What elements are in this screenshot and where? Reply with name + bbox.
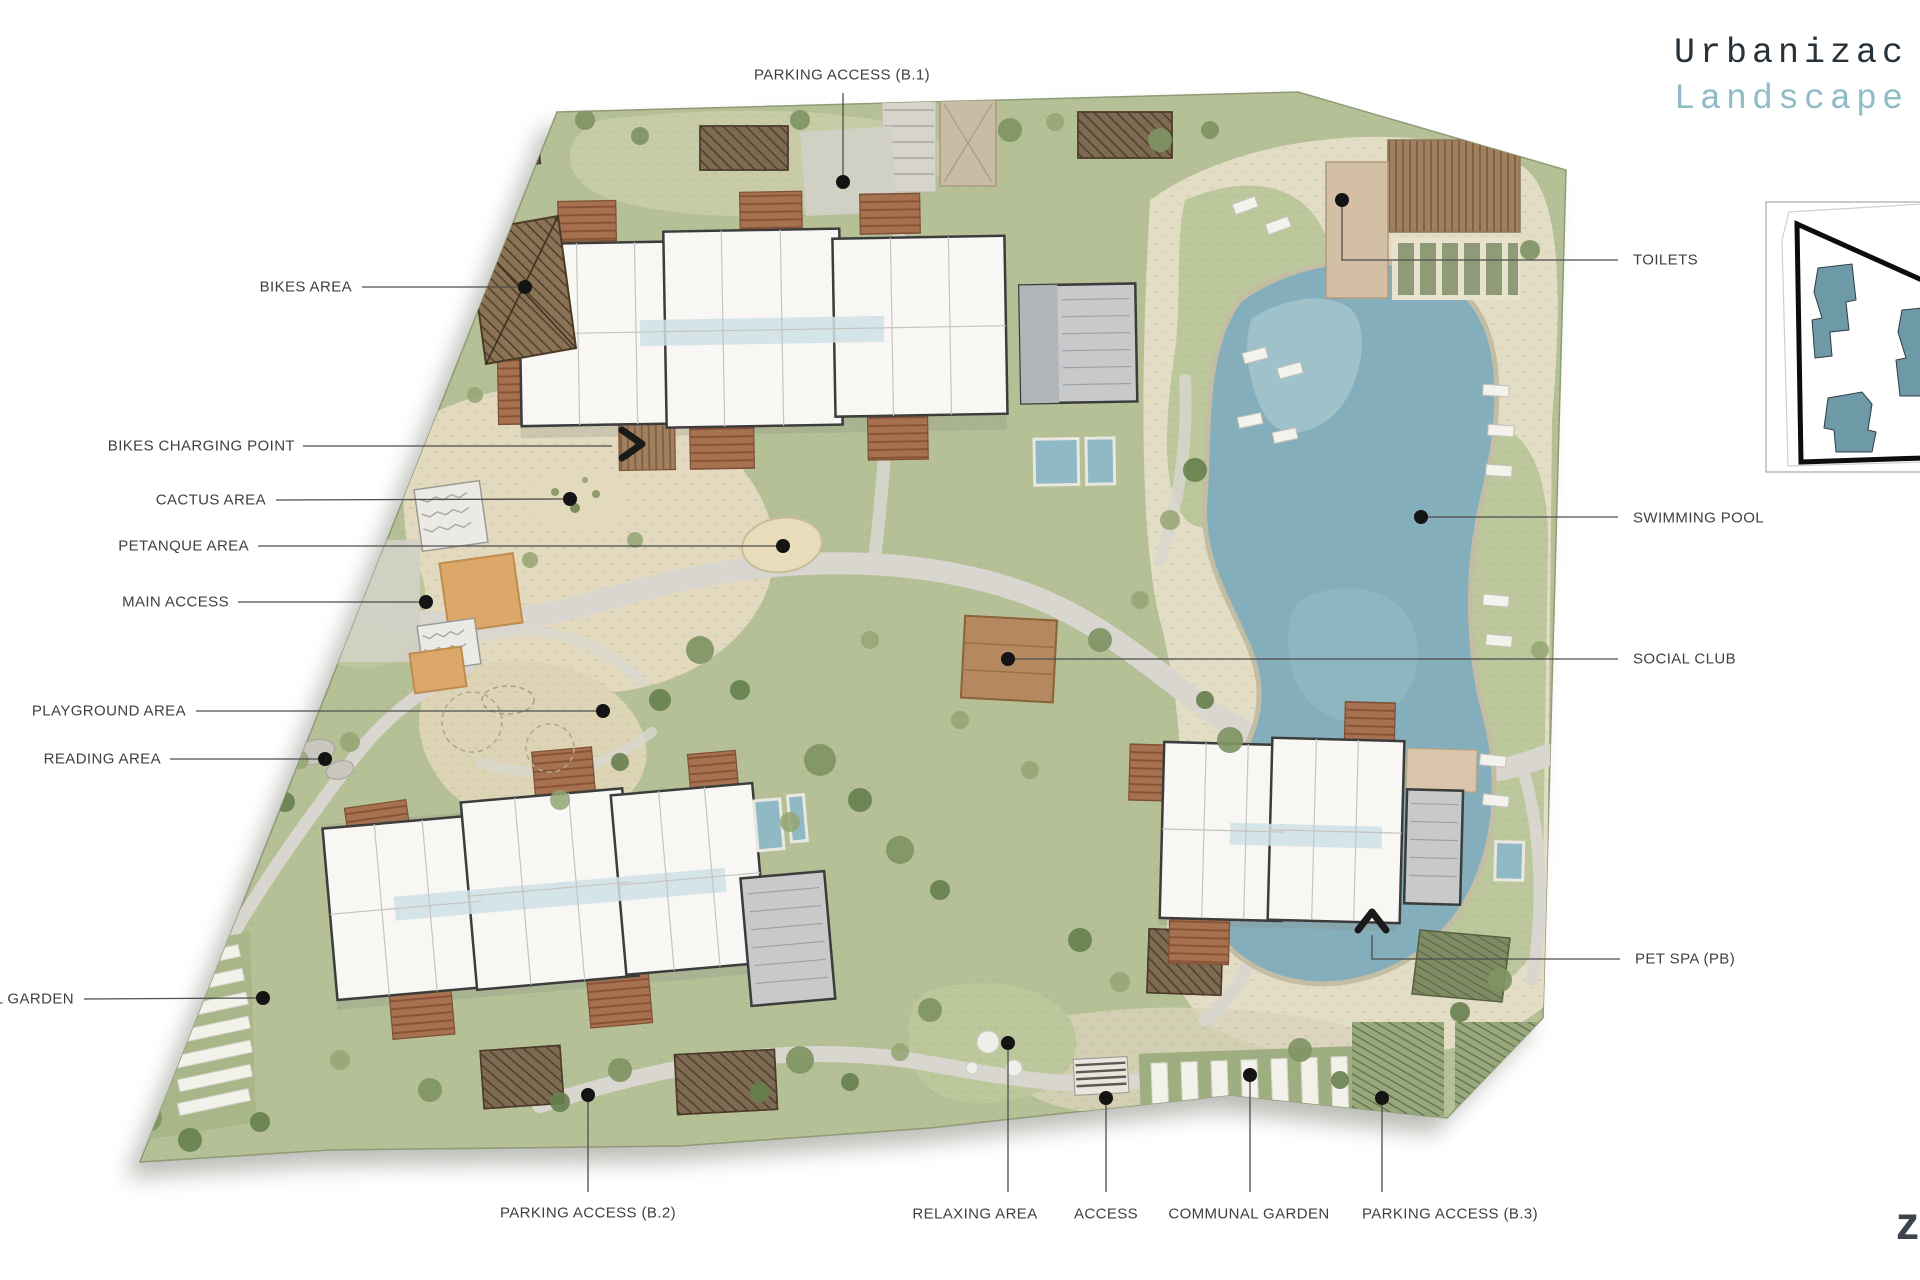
callout-social-club: SOCIAL CLUB xyxy=(1633,651,1736,668)
access-mat xyxy=(1073,1057,1129,1096)
landscape-masterplan-page: Urbanizac Landscape PARKING ACCESS (B.1)… xyxy=(0,0,1920,1280)
title-line-2: Landscape xyxy=(1674,76,1908,122)
left-garden-rows xyxy=(132,932,256,1142)
pet-spa-pad xyxy=(1412,930,1510,1002)
callout-swimming-pool: SWIMMING POOL xyxy=(1633,510,1764,527)
inset-key-map xyxy=(1766,202,1920,472)
callout-parking-access-b2: PARKING ACCESS (B.2) xyxy=(378,1205,798,1222)
title-line-1: Urbanizac xyxy=(1674,30,1908,76)
callout-garden-left: L GARDEN xyxy=(0,991,74,1008)
callout-bikes-charging-point: BIKES CHARGING POINT xyxy=(0,438,295,455)
callout-pet-spa: PET SPA (PB) xyxy=(1635,951,1735,968)
callout-playground-area: PLAYGROUND AREA xyxy=(0,703,186,720)
callout-petanque-area: PETANQUE AREA xyxy=(0,538,249,555)
callout-main-access: MAIN ACCESS xyxy=(0,594,229,611)
logo-glyph: z xyxy=(1896,1196,1919,1250)
toilets-building xyxy=(1326,140,1520,300)
callout-toilets: TOILETS xyxy=(1633,252,1698,269)
callout-parking-access-b3: PARKING ACCESS (B.3) xyxy=(1240,1206,1660,1223)
callout-cactus-area: CACTUS AREA xyxy=(0,492,266,509)
callout-parking-access-b1: PARKING ACCESS (B.1) xyxy=(632,67,1052,84)
callout-reading-area: READING AREA xyxy=(0,751,161,768)
site-plan-illustration xyxy=(0,0,1920,1280)
title-block: Urbanizac Landscape xyxy=(1674,30,1908,122)
callout-bikes-area: BIKES AREA xyxy=(0,279,352,296)
